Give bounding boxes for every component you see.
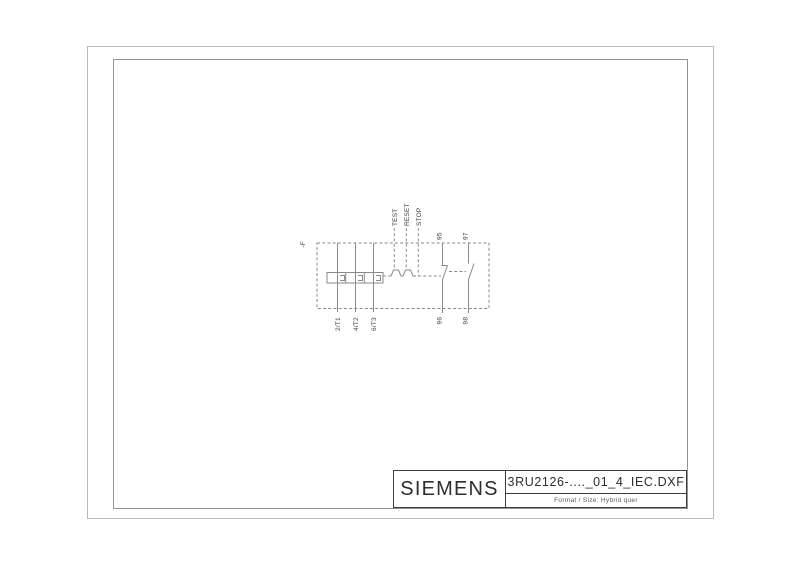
phase-conductors bbox=[338, 243, 374, 312]
title-block-right-column: 3RU2126-...._01_4_IEC.DXF Format / Size:… bbox=[506, 471, 686, 507]
stop-label: STOP bbox=[416, 208, 423, 226]
drawing-sheet: -F TEST RESET STOP 95 97 96 98 2/T1 4/T2… bbox=[0, 0, 800, 565]
terminal-96-label: 96 bbox=[437, 317, 444, 325]
terminal-6T3-label: 6/T3 bbox=[371, 317, 378, 331]
device-tag-label: -F bbox=[300, 241, 307, 248]
actuator-bumps bbox=[391, 270, 413, 276]
terminal-97-label: 97 bbox=[463, 232, 470, 240]
test-label: TEST bbox=[392, 209, 399, 226]
terminal-4T2-label: 4/T2 bbox=[353, 317, 360, 331]
terminal-2T1-label: 2/T1 bbox=[335, 317, 342, 331]
format-size-label: Format / Size: Hybrid quer bbox=[506, 494, 686, 507]
title-block: SIEMENS 3RU2126-...._01_4_IEC.DXF Format… bbox=[393, 470, 687, 508]
drawing-filename: 3RU2126-...._01_4_IEC.DXF bbox=[506, 471, 686, 494]
trip-mechanism bbox=[383, 270, 466, 276]
brand-logo-text: SIEMENS bbox=[394, 471, 506, 507]
reset-label: RESET bbox=[404, 203, 411, 226]
no-contact-97-98 bbox=[469, 243, 475, 313]
terminal-95-label: 95 bbox=[437, 232, 444, 240]
terminal-98-label: 98 bbox=[463, 317, 470, 325]
nc-contact-95-96 bbox=[442, 243, 448, 313]
